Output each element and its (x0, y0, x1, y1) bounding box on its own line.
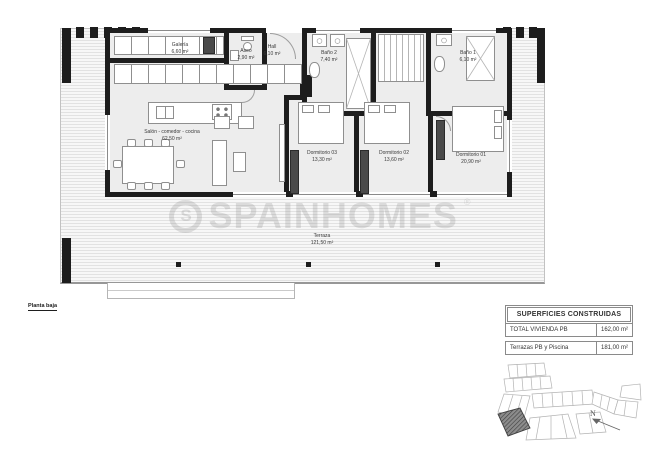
room-label-dormitorio-01: Dormitorio 01 20,90 m² (444, 152, 498, 165)
summary-row-total: TOTAL VIVIENDA PB 162,00 m² (506, 323, 632, 336)
chair (113, 160, 122, 168)
window (148, 28, 210, 33)
room-label-salon: Salón - comedor - cocina 62,50 m² (127, 129, 217, 142)
wall (426, 28, 431, 116)
pillow (494, 110, 502, 123)
tv-unit (279, 124, 285, 182)
pillow (318, 105, 330, 113)
pergola-beam (90, 27, 98, 38)
floorplan-sheet: Galería 6,60 m² Aseo 2,90 m² Hall 6,10 m… (0, 0, 650, 450)
chair (161, 182, 170, 190)
pillow (384, 105, 396, 113)
kitchen-sink (156, 106, 174, 119)
shower (346, 38, 371, 109)
terrace-column (306, 262, 311, 267)
porch-pillar (537, 28, 545, 83)
wall (428, 111, 433, 197)
summary-secondary-box: Terrazas PB y Piscina 181,00 m² (505, 341, 633, 355)
summary-row-terraces: Terrazas PB y Piscina 181,00 m² (506, 342, 632, 354)
pillow (302, 105, 314, 113)
window (105, 115, 110, 170)
terrace-column (176, 262, 181, 267)
window (316, 28, 360, 33)
wall (105, 58, 225, 63)
room-label-bano2: Baño 2 7,40 m² (312, 50, 346, 63)
washbasin (330, 34, 345, 47)
dining-table (122, 146, 174, 184)
washbasin (312, 34, 327, 47)
washbasin (436, 34, 452, 46)
wall (354, 111, 359, 197)
floor-label: Planta baja (28, 303, 57, 311)
summary-row-label: Terrazas PB y Piscina (506, 342, 596, 354)
pillow (368, 105, 380, 113)
armchair (214, 116, 230, 129)
pillow (494, 126, 502, 139)
sofa (212, 140, 227, 186)
window-mullion (430, 191, 437, 197)
porch-pillar (62, 28, 71, 83)
kitchen-counter (114, 64, 302, 84)
room-label-terraza: Terraza 121,50 m² (294, 233, 350, 246)
terrace-steps (107, 283, 295, 299)
chair (127, 182, 136, 190)
porch-pillar (62, 238, 71, 283)
pergola-beam (76, 27, 84, 38)
site-location-map: N (480, 362, 645, 447)
summary-main-box: SUPERFICIES CONSTRUIDAS TOTAL VIVIENDA P… (505, 305, 633, 337)
coffee-table (233, 152, 246, 172)
toilet (309, 62, 320, 78)
room-label-dormitorio-02: Dormitorio 02 13,60 m² (368, 150, 420, 163)
room-label-dormitorio-03: Dormitorio 03 13,30 m² (296, 150, 348, 163)
north-label: N (590, 409, 596, 418)
summary-row-value: 162,00 m² (596, 324, 632, 336)
summary-header: SUPERFICIES CONSTRUIDAS (507, 307, 631, 322)
closet (378, 34, 424, 82)
chair (176, 160, 185, 168)
window (233, 192, 507, 197)
room-label-hall: Hall 6,10 m² (250, 44, 294, 57)
window (507, 120, 512, 172)
window (452, 28, 496, 33)
summary-row-value: 181,00 m² (596, 342, 632, 354)
toilet-tank (241, 36, 254, 41)
terrace-column (435, 262, 440, 267)
pergola-beam (529, 27, 537, 38)
summary-table: SUPERFICIES CONSTRUIDAS TOTAL VIVIENDA P… (505, 305, 633, 355)
chair (144, 182, 153, 190)
room-label-galeria: Galería 6,60 m² (150, 42, 210, 55)
pergola-beam (516, 27, 524, 38)
armchair (238, 116, 254, 129)
room-label-bano1: Baño 1 6,10 m² (444, 50, 492, 63)
summary-row-label: TOTAL VIVIENDA PB (506, 324, 596, 336)
